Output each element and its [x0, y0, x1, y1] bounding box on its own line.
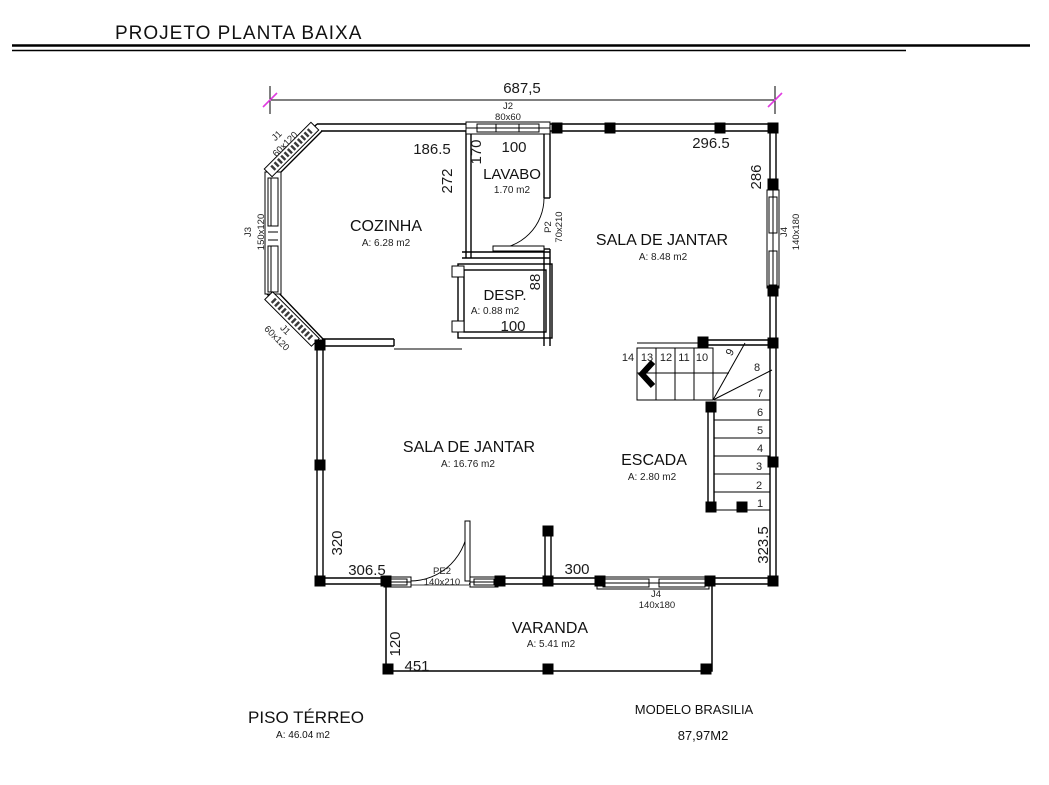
step-8: 8 — [754, 362, 760, 374]
step-11: 11 — [678, 352, 689, 364]
step-7: 7 — [757, 388, 763, 400]
j4-bottom-code: J4 — [651, 589, 661, 600]
j2-code: J2 — [503, 101, 513, 112]
step-3: 3 — [756, 461, 762, 473]
room-area: A: 16.76 m2 — [441, 459, 495, 470]
room-cozinha: COZINHA A: 6.28 m2 — [350, 218, 422, 249]
room-escada: ESCADA A: 2.80 m2 — [621, 452, 687, 483]
dim-right-lower-height: 323.5 — [755, 526, 772, 564]
room-name: ESCADA — [621, 452, 687, 469]
room-area: 1.70 m2 — [494, 185, 531, 196]
floor-label: PISO TÉRREO — [248, 708, 364, 727]
label-j4-bottom: J4 140x180 — [639, 589, 675, 611]
label-p2: P2 70x210 — [543, 211, 565, 242]
pe2-code: PE2 — [433, 566, 451, 577]
overall-dimension: 687,5 — [263, 80, 782, 114]
room-name: LAVABO — [483, 166, 541, 183]
p2-code: P2 — [543, 221, 554, 233]
columns — [315, 123, 779, 675]
model-label: MODELO BRASILIA — [635, 702, 754, 717]
step-5: 5 — [757, 425, 763, 437]
room-name: VARANDA — [512, 620, 588, 637]
window-j3 — [265, 172, 281, 294]
room-varanda: VARANDA A: 5.41 m2 — [512, 620, 588, 650]
room-area: A: 0.88 m2 — [471, 306, 520, 317]
step-2: 2 — [756, 480, 762, 492]
room-area: A: 5.41 m2 — [527, 639, 576, 650]
footer-floor-block: PISO TÉRREO A: 46.04 m2 — [248, 708, 364, 741]
dim-varanda-height: 120 — [387, 631, 404, 656]
dim-cozinha-height: 272 — [439, 168, 456, 193]
label-pe2: PE2 140x210 — [424, 566, 460, 588]
j4-bottom-size: 140x180 — [639, 600, 675, 611]
pe2-size: 140x210 — [424, 577, 460, 588]
room-lavabo: LAVABO 1.70 m2 — [483, 166, 541, 196]
dim-despensa-width: 100 — [500, 318, 525, 335]
label-j4-right: J4 140x180 — [779, 214, 802, 250]
floor-area: A: 46.04 m2 — [276, 730, 330, 741]
door-p2 — [493, 198, 544, 251]
floor-plan-canvas: PROJETO PLANTA BAIXA 687,5 — [0, 0, 1049, 785]
window-pe2-sidelight-right — [470, 577, 498, 587]
step-13: 13 — [641, 352, 653, 364]
staircase — [637, 343, 772, 510]
window-j4-bottom — [597, 577, 709, 589]
dim-sala-inferior-height: 320 — [329, 530, 346, 555]
step-1: 1 — [757, 498, 763, 510]
dim-despensa-height: 88 — [527, 274, 544, 291]
dim-bottom-mid: 300 — [564, 561, 589, 578]
room-despensa: DESP. A: 0.88 m2 — [471, 287, 527, 317]
j3-size: 150x120 — [256, 214, 267, 250]
label-j3: J3 150x120 — [243, 214, 267, 250]
step-12: 12 — [660, 352, 672, 364]
room-area: A: 6.28 m2 — [362, 238, 411, 249]
step-4: 4 — [757, 443, 763, 455]
dim-cozinha-width: 186.5 — [413, 141, 451, 158]
step-10: 10 — [696, 352, 708, 364]
room-area: A: 2.80 m2 — [628, 472, 677, 483]
dim-lavabo-width: 100 — [501, 139, 526, 156]
stair-direction-arrow-icon — [642, 362, 653, 386]
label-j2: J2 80x60 — [495, 101, 521, 123]
model-area: 87,97M2 — [678, 728, 729, 743]
dim-lavabo-height: 170 — [468, 139, 485, 164]
room-sala-jantar-inferior: SALA DE JANTAR A: 16.76 m2 — [403, 439, 535, 470]
window-j2 — [466, 122, 550, 134]
room-name: SALA DE JANTAR — [596, 232, 728, 249]
room-sala-jantar-superior: SALA DE JANTAR A: 8.48 m2 — [596, 232, 728, 263]
overall-width-dim-label: 687,5 — [503, 80, 541, 97]
room-name: DESP. — [483, 287, 526, 304]
p2-size: 70x210 — [554, 211, 565, 242]
window-j4-right — [767, 190, 779, 288]
j4-right-code: J4 — [779, 227, 790, 237]
step-14: 14 — [622, 352, 634, 364]
dim-sala-superior-width: 296.5 — [692, 135, 730, 152]
dim-sala-superior-height: 286 — [748, 164, 765, 189]
dim-sala-inferior-width: 306.5 — [348, 562, 386, 579]
step-9: 9 — [724, 347, 737, 358]
room-name: COZINHA — [350, 218, 422, 235]
title-underline — [12, 46, 1030, 51]
dim-varanda-width: 451 — [404, 658, 429, 675]
footer-model-block: MODELO BRASILIA 87,97M2 — [635, 702, 754, 743]
room-area: A: 8.48 m2 — [639, 252, 688, 263]
room-name: SALA DE JANTAR — [403, 439, 535, 456]
page-title: PROJETO PLANTA BAIXA — [115, 23, 362, 44]
j4-right-size: 140x180 — [791, 214, 802, 250]
floor-plan-sheet: PROJETO PLANTA BAIXA 687,5 — [0, 0, 1049, 785]
j3-code: J3 — [243, 227, 254, 237]
step-6: 6 — [757, 407, 763, 419]
j2-size: 80x60 — [495, 112, 521, 123]
